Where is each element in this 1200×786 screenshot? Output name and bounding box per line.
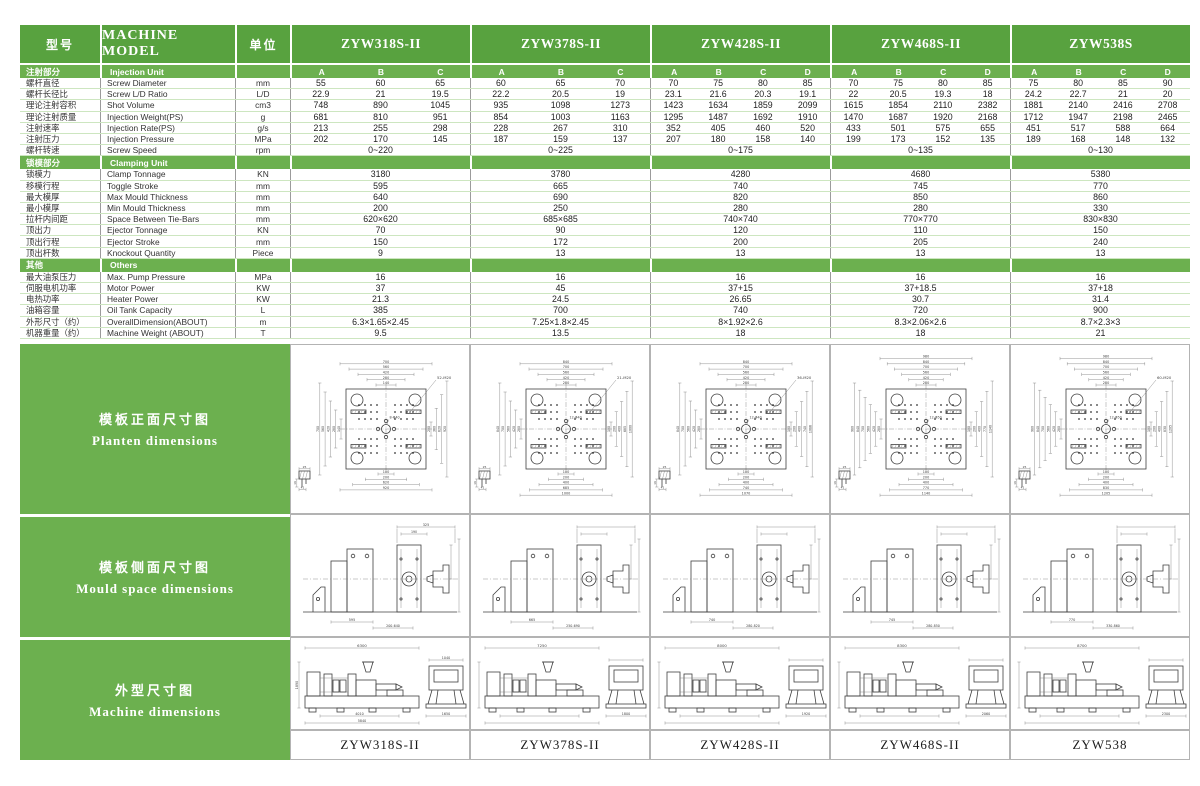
svg-text:920: 920 — [443, 426, 447, 432]
spec-value: 8.7×2.3×3 — [1011, 317, 1190, 327]
spec-value-group: 3780 — [470, 169, 650, 179]
svg-text:560: 560 — [1047, 426, 1051, 432]
svg-text:560: 560 — [687, 426, 691, 432]
spec-value-group: 7.25×1.8×2.45 — [470, 317, 650, 327]
spec-value-group: 595 — [290, 181, 470, 191]
spec-value: 520 — [785, 123, 830, 133]
spec-value: 700 — [471, 305, 650, 315]
svg-text:420: 420 — [743, 376, 749, 380]
spec-value-group: 7488901045 — [290, 100, 470, 110]
platen-drawing-cell: 8407005604202801002004007401070840700560… — [650, 344, 830, 514]
spec-value-group: 70758085 — [830, 78, 1010, 88]
spec-value: 451 — [1011, 123, 1056, 133]
spec-value-group: 280 — [650, 203, 830, 213]
table-header-row: 型号MACHINE MODEL单位ZYW318S-IIZYW378S-IIZYW… — [20, 25, 1190, 63]
svg-text:41: 41 — [1021, 486, 1025, 490]
spec-value: 595 — [291, 181, 470, 191]
svg-text:2300: 2300 — [1162, 712, 1170, 716]
spec-unit: rpm — [235, 145, 290, 155]
spec-row: 锁模力Clamp TonnageKN31803780428046805380 — [20, 169, 1190, 180]
variant-header-group — [470, 156, 650, 169]
platen-drawing: 9808407005604202801002004008301205980840… — [1011, 345, 1189, 513]
spec-value: 900 — [1011, 305, 1190, 315]
svg-text:100: 100 — [563, 470, 569, 474]
spec-sheet: 型号MACHINE MODEL单位ZYW318S-IIZYW378S-IIZYW… — [20, 25, 1190, 760]
svg-text:560: 560 — [563, 370, 569, 374]
spec-value-group: 0~130 — [1010, 145, 1190, 155]
spec-label-zh: 螺杆长径比 — [20, 89, 100, 99]
spec-value-group: 250 — [470, 203, 650, 213]
footer-model-label: ZYW538 — [1010, 730, 1190, 760]
svg-text:420: 420 — [923, 376, 929, 380]
spec-value: 3180 — [291, 169, 470, 179]
svg-text:25: 25 — [1023, 465, 1027, 469]
svg-text:420: 420 — [383, 370, 389, 374]
mould-space-drawing: 745280-850 — [831, 515, 1009, 636]
spec-value-group: 385 — [290, 305, 470, 315]
spec-value: 16 — [291, 272, 470, 282]
platen-drawing: 9808407005604202801002004007701140980840… — [831, 345, 1009, 513]
svg-text:700: 700 — [681, 426, 685, 432]
spec-value-group: 70 — [290, 225, 470, 235]
svg-text:280: 280 — [923, 381, 929, 385]
variant-header-group — [1010, 156, 1190, 169]
spec-row: 顶出杆数Knockout QuantityPiece913131313 — [20, 248, 1190, 259]
spec-value: 70 — [831, 78, 876, 88]
spec-value: 16 — [651, 272, 830, 282]
spec-value: 45 — [471, 283, 650, 293]
mould-space-drawing-cell: 740280-820 — [650, 514, 830, 637]
spec-value: 2708 — [1145, 100, 1190, 110]
svg-text:420: 420 — [1103, 376, 1109, 380]
svg-text:100: 100 — [383, 470, 389, 474]
spec-label-en: Screw Diameter — [100, 78, 235, 88]
spec-value: 21.3 — [291, 294, 470, 304]
spec-value: 690 — [471, 192, 650, 202]
svg-text:595: 595 — [349, 618, 355, 622]
spec-row: 油箱容量Oil Tank CapacityL385700740720900 — [20, 305, 1190, 316]
variant-header-group: ABCD — [830, 65, 1010, 78]
spec-label-zh: 拉杆内间距 — [20, 214, 100, 224]
footer-model-label: ZYW318S-II — [290, 730, 470, 760]
platen-drawing-cell: 8407005604202801002004006851000840700560… — [470, 344, 650, 514]
spec-value: 22 — [831, 89, 876, 99]
svg-text:700: 700 — [501, 426, 505, 432]
svg-text:400: 400 — [618, 426, 622, 432]
spec-unit: L/D — [235, 89, 290, 99]
spec-value-group: 31.4 — [1010, 294, 1190, 304]
spec-value: 13 — [471, 248, 650, 258]
svg-text:200: 200 — [612, 426, 616, 432]
svg-text:745: 745 — [889, 618, 895, 622]
svg-text:16: 16 — [653, 481, 657, 485]
svg-text:280-850: 280-850 — [926, 624, 940, 628]
svg-text:100: 100 — [787, 426, 791, 432]
spec-value: 1295 — [651, 112, 696, 122]
spec-value: 7.25×1.8×2.45 — [471, 317, 650, 327]
machine-drawing-cell: 87002300 — [1010, 637, 1190, 730]
spec-label-zh: 注射压力 — [20, 134, 100, 144]
spec-label-en: Injection Pressure — [100, 134, 235, 144]
spec-value: 433 — [831, 123, 876, 133]
spec-value: 26.65 — [651, 294, 830, 304]
spec-value: 1947 — [1056, 112, 1101, 122]
spec-value: 1854 — [876, 100, 921, 110]
svg-text:560: 560 — [507, 426, 511, 432]
svg-text:1205: 1205 — [1102, 491, 1111, 495]
spec-label-en: Shot Volume — [100, 100, 235, 110]
spec-unit: MPa — [235, 134, 290, 144]
mould-space-drawing: 325190595200-640 — [291, 515, 469, 636]
spec-value: 20.5 — [531, 89, 591, 99]
spec-value-group: 1470168719202168 — [830, 112, 1010, 122]
svg-text:420: 420 — [512, 426, 516, 432]
spec-label-en: Clamp Tonnage — [100, 169, 235, 179]
spec-value: 0~135 — [831, 145, 1010, 155]
svg-text:1140: 1140 — [922, 491, 931, 495]
variant-letter: C — [591, 65, 650, 78]
spec-label-zh: 锁模力 — [20, 169, 100, 179]
spec-row: 拉杆内间距Space Between Tie-Barsmm620×620685×… — [20, 214, 1190, 225]
spec-value-group: 700 — [470, 305, 650, 315]
spec-value: 24.2 — [1011, 89, 1056, 99]
spec-value-group: 21 — [1010, 328, 1190, 338]
spec-value: 1859 — [741, 100, 786, 110]
spec-value: 213 — [291, 123, 351, 133]
spec-value: 22.9 — [291, 89, 351, 99]
mould-space-drawing-cell: 325190595200-640 — [290, 514, 470, 637]
spec-value-group: 13 — [830, 248, 1010, 258]
spec-value-group: 640 — [290, 192, 470, 202]
spec-row: 注射速率Injection Rate(PS)g/s213255298228267… — [20, 123, 1190, 134]
spec-unit: mm — [235, 203, 290, 213]
spec-value-group: 3180 — [290, 169, 470, 179]
spec-label-en: Injection Weight(PS) — [100, 112, 235, 122]
svg-text:25: 25 — [303, 465, 307, 469]
spec-value: 20 — [1145, 89, 1190, 99]
spec-value: 620×620 — [291, 214, 470, 224]
svg-text:1000: 1000 — [628, 425, 632, 433]
spec-value-group: 16 — [650, 272, 830, 282]
svg-text:560: 560 — [867, 426, 871, 432]
spec-value: 37+18.5 — [831, 283, 1010, 293]
spec-value: 21.6 — [696, 89, 741, 99]
svg-text:12-Φ50: 12-Φ50 — [1110, 415, 1122, 419]
spec-value: 890 — [351, 100, 411, 110]
spec-value: 90 — [1145, 78, 1190, 88]
spec-value: 170 — [351, 134, 411, 144]
spec-value: 200 — [291, 203, 470, 213]
svg-text:560: 560 — [743, 370, 749, 374]
spec-value: 150 — [291, 236, 470, 246]
spec-value-group: 1615185421102382 — [830, 100, 1010, 110]
spec-unit: mm — [235, 214, 290, 224]
spec-row: 机器重量（约）Machine Weight (ABOUT)T9.513.5181… — [20, 328, 1190, 339]
spec-value: 720 — [831, 305, 1010, 315]
spec-value-group: 740 — [650, 181, 830, 191]
spec-value: 575 — [921, 123, 966, 133]
spec-value-group: 110 — [830, 225, 1010, 235]
svg-text:16: 16 — [1013, 481, 1017, 485]
spec-value: 228 — [471, 123, 531, 133]
svg-text:100: 100 — [607, 426, 611, 432]
spec-value: 2416 — [1101, 100, 1146, 110]
spec-value: 172 — [471, 236, 650, 246]
variant-header-group — [830, 259, 1010, 272]
spec-label-en: Oil Tank Capacity — [100, 305, 235, 315]
variant-header-group: ABC — [290, 65, 470, 78]
spec-value: 55 — [291, 78, 351, 88]
platen-drawing: 8407005604202801002004007401070840700560… — [651, 345, 829, 513]
spec-value: 2099 — [785, 100, 830, 110]
footer-model-label: ZYW468S-II — [830, 730, 1010, 760]
svg-text:60-M20: 60-M20 — [1157, 375, 1172, 380]
svg-text:980: 980 — [923, 355, 929, 359]
platen-drawing: 8407005604202801002004006851000840700560… — [471, 345, 649, 513]
spec-value-group: 200 — [290, 203, 470, 213]
svg-text:700: 700 — [861, 426, 865, 432]
spec-value: 168 — [1056, 134, 1101, 144]
spec-unit: T — [235, 328, 290, 338]
spec-value: 1163 — [590, 112, 650, 122]
variant-letter: A — [832, 65, 877, 78]
svg-text:980: 980 — [1103, 355, 1109, 359]
svg-text:200: 200 — [972, 426, 976, 432]
svg-text:41: 41 — [841, 486, 845, 490]
svg-text:280: 280 — [877, 426, 881, 432]
footer-model-label: ZYW428S-II — [650, 730, 830, 760]
svg-text:560: 560 — [1103, 370, 1109, 374]
spec-value-group: 0~225 — [470, 145, 650, 155]
spec-value: 85 — [1101, 78, 1146, 88]
variant-header-group — [290, 259, 470, 272]
spec-label-en: Ejector Tonnage — [100, 225, 235, 235]
spec-value-group: 85410031163 — [470, 112, 650, 122]
spec-label-en: Motor Power — [100, 283, 235, 293]
spec-unit: m — [235, 317, 290, 327]
spec-value-group: 150 — [290, 236, 470, 246]
svg-text:840: 840 — [856, 426, 860, 432]
svg-text:140: 140 — [337, 426, 341, 432]
spec-row: 伺服电机功率Motor PowerKW374537+1537+18.537+18 — [20, 283, 1190, 294]
spec-value-group: 37+15 — [650, 283, 830, 293]
spec-value: 16 — [831, 272, 1010, 282]
spec-value: 23.1 — [651, 89, 696, 99]
spec-value-group: 352405460520 — [650, 123, 830, 133]
spec-value: 1634 — [696, 100, 741, 110]
variant-header-group — [470, 259, 650, 272]
row-label-machine-en: Machine dimensions — [89, 704, 221, 720]
variant-letter: C — [411, 65, 470, 78]
spec-value: 31.4 — [1011, 294, 1190, 304]
variant-letter: B — [697, 65, 742, 78]
spec-value-group: 6.3×1.65×2.45 — [290, 317, 470, 327]
svg-text:700: 700 — [923, 365, 929, 369]
svg-text:2060: 2060 — [982, 712, 990, 716]
spec-value: 65 — [531, 78, 591, 88]
spec-unit: mm — [235, 181, 290, 191]
spec-value: 250 — [471, 203, 650, 213]
spec-value: 18 — [651, 328, 830, 338]
svg-text:200: 200 — [427, 426, 431, 432]
row-label-mould-zh: 模板侧面尺寸图 — [99, 557, 211, 576]
spec-value-group: 1423163418592099 — [650, 100, 830, 110]
spec-value: 60 — [471, 78, 531, 88]
spec-value: 199 — [831, 134, 876, 144]
drawing-row-label-machine: 外型尺寸图 Machine dimensions — [20, 637, 290, 760]
spec-row: 顶出力Ejector TonnageKN7090120110150 — [20, 225, 1190, 236]
section-label-zh: 锁模部分 — [20, 156, 100, 169]
spec-value: 810 — [351, 112, 411, 122]
spec-value: 70 — [291, 225, 470, 235]
spec-value-group: 8.3×2.06×2.6 — [830, 317, 1010, 327]
svg-text:770: 770 — [983, 426, 987, 432]
svg-text:360: 360 — [432, 426, 436, 432]
machine-drawing: 87002300 — [1011, 638, 1189, 729]
spec-value: 145 — [410, 134, 470, 144]
spec-label-en: Toggle Stroke — [100, 181, 235, 191]
spec-value: 19.5 — [410, 89, 470, 99]
spec-value-group: 37+18 — [1010, 283, 1190, 293]
spec-value: 280 — [651, 203, 830, 213]
spec-value: 255 — [351, 123, 411, 133]
svg-text:840: 840 — [496, 426, 500, 432]
svg-text:620: 620 — [383, 481, 389, 485]
spec-value-group: 13 — [470, 248, 650, 258]
spec-value: 158 — [741, 134, 786, 144]
spec-value-group: 16 — [830, 272, 1010, 282]
footer-model-label: ZYW378S-II — [470, 730, 650, 760]
section-band-row: 其他Others — [20, 259, 1190, 272]
svg-text:280: 280 — [697, 426, 701, 432]
spec-unit: g/s — [235, 123, 290, 133]
spec-value: 770 — [1011, 181, 1190, 191]
svg-text:140: 140 — [383, 381, 389, 385]
spec-value: 681 — [291, 112, 351, 122]
machine-drawing-cell: 80001920 — [650, 637, 830, 730]
spec-value: 2198 — [1101, 112, 1146, 122]
spec-value: 854 — [471, 112, 531, 122]
svg-text:100: 100 — [1147, 426, 1151, 432]
spec-value: 1003 — [531, 112, 591, 122]
spec-value-group: 620×620 — [290, 214, 470, 224]
spec-table: 型号MACHINE MODEL单位ZYW318S-IIZYW378S-IIZYW… — [20, 25, 1190, 339]
header-unit: 单位 — [235, 25, 290, 63]
svg-text:280: 280 — [563, 381, 569, 385]
spec-label-en: Heater Power — [100, 294, 235, 304]
spec-unit: KN — [235, 169, 290, 179]
spec-label-zh: 顶出力 — [20, 225, 100, 235]
spec-value: 20.3 — [741, 89, 786, 99]
svg-text:190: 190 — [411, 530, 417, 534]
spec-label-en: Space Between Tie-Bars — [100, 214, 235, 224]
spec-value: 4680 — [831, 169, 1010, 179]
spec-value: 352 — [651, 123, 696, 133]
spec-value-group: 13.5 — [470, 328, 650, 338]
spec-value: 240 — [1011, 236, 1190, 246]
spec-label-zh: 最小模厚 — [20, 203, 100, 213]
spec-row: 移模行程Toggle Strokemm595665740745770 — [20, 181, 1190, 192]
spec-value-group: 30.7 — [830, 294, 1010, 304]
mould-space-drawing-cell: 665250-690 — [470, 514, 650, 637]
spec-value: 135 — [965, 134, 1010, 144]
svg-text:25: 25 — [663, 465, 667, 469]
spec-label-en: Max. Pump Pressure — [100, 272, 235, 282]
spec-value-group: 0~175 — [650, 145, 830, 155]
machine-drawing: 83002060 — [831, 638, 1009, 729]
header-machine-model: MACHINE MODEL — [100, 25, 235, 63]
spec-value: 2168 — [965, 112, 1010, 122]
svg-text:280: 280 — [332, 426, 336, 432]
spec-value-group: 860 — [1010, 192, 1190, 202]
spec-value-group: 22.220.519 — [470, 89, 650, 99]
spec-label-en: Machine Weight (ABOUT) — [100, 328, 235, 338]
spec-value: 1098 — [531, 100, 591, 110]
spec-value: 770×770 — [831, 214, 1010, 224]
spec-value-group: 13 — [650, 248, 830, 258]
section-band-row: 注射部分Injection UnitABCABCABCDABCDABCD — [20, 65, 1190, 78]
variant-header-group — [650, 156, 830, 169]
svg-text:700: 700 — [563, 365, 569, 369]
spec-value-group: 18 — [650, 328, 830, 338]
spec-value: 6.3×1.65×2.45 — [291, 317, 470, 327]
spec-value: 205 — [831, 236, 1010, 246]
svg-text:21-M20: 21-M20 — [617, 375, 632, 380]
spec-value: 8.3×2.06×2.6 — [831, 317, 1010, 327]
svg-text:200: 200 — [1103, 475, 1109, 479]
spec-value: 0~220 — [291, 145, 470, 155]
spec-value-group: 240 — [1010, 236, 1190, 246]
spec-value-group: 665 — [470, 181, 650, 191]
mould-space-drawing: 740280-820 — [651, 515, 829, 636]
spec-value-group: 202170145 — [290, 134, 470, 144]
spec-value: 16 — [471, 272, 650, 282]
row-label-mould-en: Mould space dimensions — [76, 581, 234, 597]
spec-value: 830×830 — [1011, 214, 1190, 224]
svg-text:1086: 1086 — [808, 425, 812, 433]
spec-value: 152 — [921, 134, 966, 144]
spec-value: 30.7 — [831, 294, 1010, 304]
svg-text:770: 770 — [923, 486, 929, 490]
spec-value: 70 — [651, 78, 696, 88]
spec-value: 85 — [965, 78, 1010, 88]
variant-letter: D — [966, 65, 1011, 78]
spec-value-group: 16 — [1010, 272, 1190, 282]
spec-unit: KN — [235, 225, 290, 235]
spec-value: 385 — [291, 305, 470, 315]
spec-value: 1687 — [876, 112, 921, 122]
spec-value: 70 — [590, 78, 650, 88]
spec-value-group: 9 — [290, 248, 470, 258]
spec-value: 860 — [1011, 192, 1190, 202]
variant-header-group — [830, 156, 1010, 169]
spec-value: 85 — [785, 78, 830, 88]
svg-text:25: 25 — [843, 465, 847, 469]
spec-value: 1692 — [741, 112, 786, 122]
drawing-row-label-mould-space: 模板侧面尺寸图 Mould space dimensions — [20, 514, 290, 637]
svg-text:8000: 8000 — [717, 643, 727, 648]
spec-value-group: 189168148132 — [1010, 134, 1190, 144]
svg-text:6300: 6300 — [357, 643, 367, 648]
spec-value: 13.5 — [471, 328, 650, 338]
spec-value: 740 — [651, 305, 830, 315]
spec-value: 501 — [876, 123, 921, 133]
spec-value: 2382 — [965, 100, 1010, 110]
spec-value: 740×740 — [651, 214, 830, 224]
variant-letter: B — [531, 65, 590, 78]
spec-value: 1423 — [651, 100, 696, 110]
svg-text:400: 400 — [1158, 426, 1162, 432]
